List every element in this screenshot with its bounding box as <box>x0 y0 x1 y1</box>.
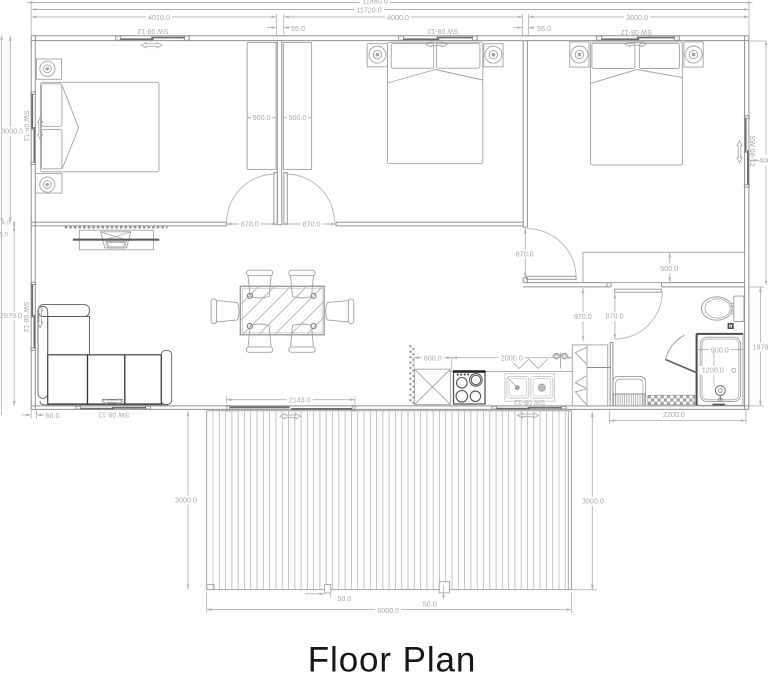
svg-text:55.0: 55.0 <box>291 24 305 33</box>
svg-text:60.0: 60.0 <box>46 411 60 420</box>
svg-text:870.0: 870.0 <box>241 220 259 229</box>
svg-text:SW 08-12: SW 08-12 <box>621 28 652 35</box>
svg-text:3000.0: 3000.0 <box>582 497 604 506</box>
svg-text:2200.0: 2200.0 <box>663 410 685 419</box>
svg-text:55.0: 55.0 <box>537 24 551 33</box>
svg-text:870.0: 870.0 <box>516 249 534 258</box>
svg-text:4.0: 4.0 <box>1 219 10 226</box>
svg-text:Floor Plan: Floor Plan <box>308 641 477 675</box>
svg-text:500.0: 500.0 <box>660 264 678 273</box>
svg-text:870.0: 870.0 <box>303 220 321 229</box>
svg-text:2979.0: 2979.0 <box>0 311 22 320</box>
svg-text:1979: 1979 <box>753 342 768 351</box>
svg-text:500.0: 500.0 <box>289 113 307 122</box>
svg-text:SW 08-12: SW 08-12 <box>98 410 129 417</box>
svg-text:600.0: 600.0 <box>424 354 442 363</box>
svg-text:970.0: 970.0 <box>574 312 592 321</box>
svg-text:400: 400 <box>759 156 768 165</box>
svg-text:SW 08-12: SW 08-12 <box>427 27 458 34</box>
svg-text:3600.0: 3600.0 <box>626 13 648 22</box>
svg-text:3000.0: 3000.0 <box>1 127 23 136</box>
svg-text:4010.0: 4010.0 <box>148 13 170 22</box>
svg-text:50.0: 50.0 <box>337 594 351 603</box>
svg-text:870.0: 870.0 <box>606 312 624 321</box>
svg-text:2143.0: 2143.0 <box>289 395 311 404</box>
svg-text:1200.0: 1200.0 <box>702 366 724 375</box>
svg-text:SW 08-12: SW 08-12 <box>748 135 755 166</box>
svg-text:SW 08-12: SW 08-12 <box>137 27 168 34</box>
svg-text:50.0: 50.0 <box>423 600 437 609</box>
svg-text:6000.0: 6000.0 <box>377 606 399 615</box>
svg-text:4000.0: 4000.0 <box>387 13 409 22</box>
svg-text:500.0: 500.0 <box>253 113 271 122</box>
svg-text:11720.0: 11720.0 <box>356 5 381 14</box>
svg-text:2000.0: 2000.0 <box>501 354 523 363</box>
svg-text:3000.0: 3000.0 <box>175 495 197 504</box>
